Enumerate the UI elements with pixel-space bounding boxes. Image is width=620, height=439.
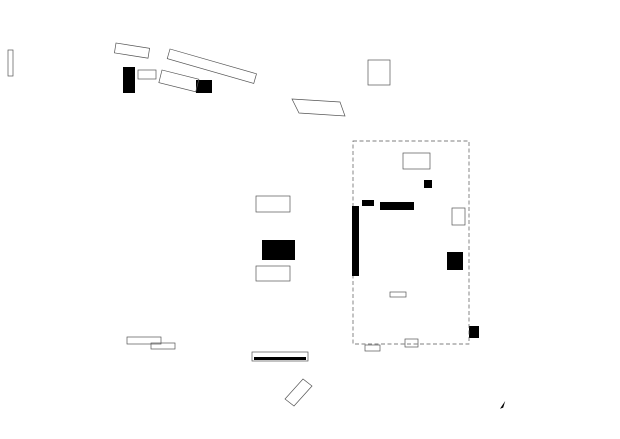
shaft-fill — [424, 180, 432, 188]
perimeter-wall — [122, 66, 299, 345]
context-streets — [0, 15, 620, 437]
stair-flight-top — [138, 70, 156, 79]
inner-walls — [122, 66, 299, 345]
stair-flight — [256, 266, 290, 281]
building-left-hall — [105, 66, 308, 361]
room-fill — [262, 240, 295, 260]
cluster-walls — [398, 150, 466, 196]
site-plan-page — [0, 0, 620, 439]
neighbor-buildings-east — [546, 18, 620, 295]
plaza-outline — [353, 346, 507, 416]
bike-rack-strip-short — [114, 43, 149, 58]
terrace-grate — [365, 345, 380, 351]
vent-grate-west — [8, 50, 13, 76]
colonnade-band — [380, 202, 414, 210]
substation-box — [469, 326, 479, 338]
roof-overhang-dashed — [353, 141, 469, 344]
door-arcs — [362, 150, 472, 330]
bike-rack — [114, 43, 149, 58]
bike-rack-strip-long — [167, 49, 256, 83]
neighbor-roofline-north — [250, 2, 502, 39]
shaft-fill — [362, 200, 374, 206]
inner-walls — [430, 150, 466, 318]
street-south — [0, 330, 354, 424]
stair-flight — [403, 153, 430, 169]
terrace-stair — [405, 339, 418, 347]
scale-bar-line — [521, 406, 601, 410]
grate-core — [254, 357, 306, 360]
plaza-bed — [192, 392, 235, 437]
ramp-west-dark — [353, 242, 358, 274]
door-arcs — [205, 84, 263, 345]
street-west-verticals — [88, 15, 103, 352]
canopy-line — [425, 97, 495, 120]
street-curves-north — [90, 16, 620, 118]
crosswalk — [368, 60, 390, 85]
escalator — [159, 70, 199, 92]
stair-flight — [256, 196, 290, 212]
lightwells-south — [210, 351, 245, 362]
pilasters-west — [105, 138, 111, 342]
stair-room-fill — [447, 252, 463, 270]
stair-core-heavy — [262, 144, 290, 190]
neighbor-building-west — [5, 41, 61, 196]
inner-wall-bottom-band — [190, 291, 299, 324]
scale-bar — [521, 406, 601, 410]
ramp-hatch-corner — [292, 99, 345, 116]
future-partitions — [123, 283, 190, 345]
hall-walls — [359, 203, 434, 336]
stair-core-divider — [262, 150, 290, 183]
core-fill — [123, 67, 135, 93]
glazing-dashes — [218, 82, 288, 100]
bike-rack — [167, 49, 256, 83]
site-plan-drawing — [0, 0, 620, 439]
terrace-furniture — [341, 202, 483, 372]
street-centerline — [78, 113, 98, 128]
sill-hatch — [390, 292, 406, 297]
north-arrow-icon — [495, 401, 510, 416]
street-east-verticals — [489, 86, 520, 362]
context-buildings — [5, 2, 620, 295]
ramp-hatch-south — [285, 379, 312, 406]
building-right — [352, 141, 472, 351]
perimeter-wall — [359, 150, 466, 336]
stair-flight — [452, 208, 465, 225]
